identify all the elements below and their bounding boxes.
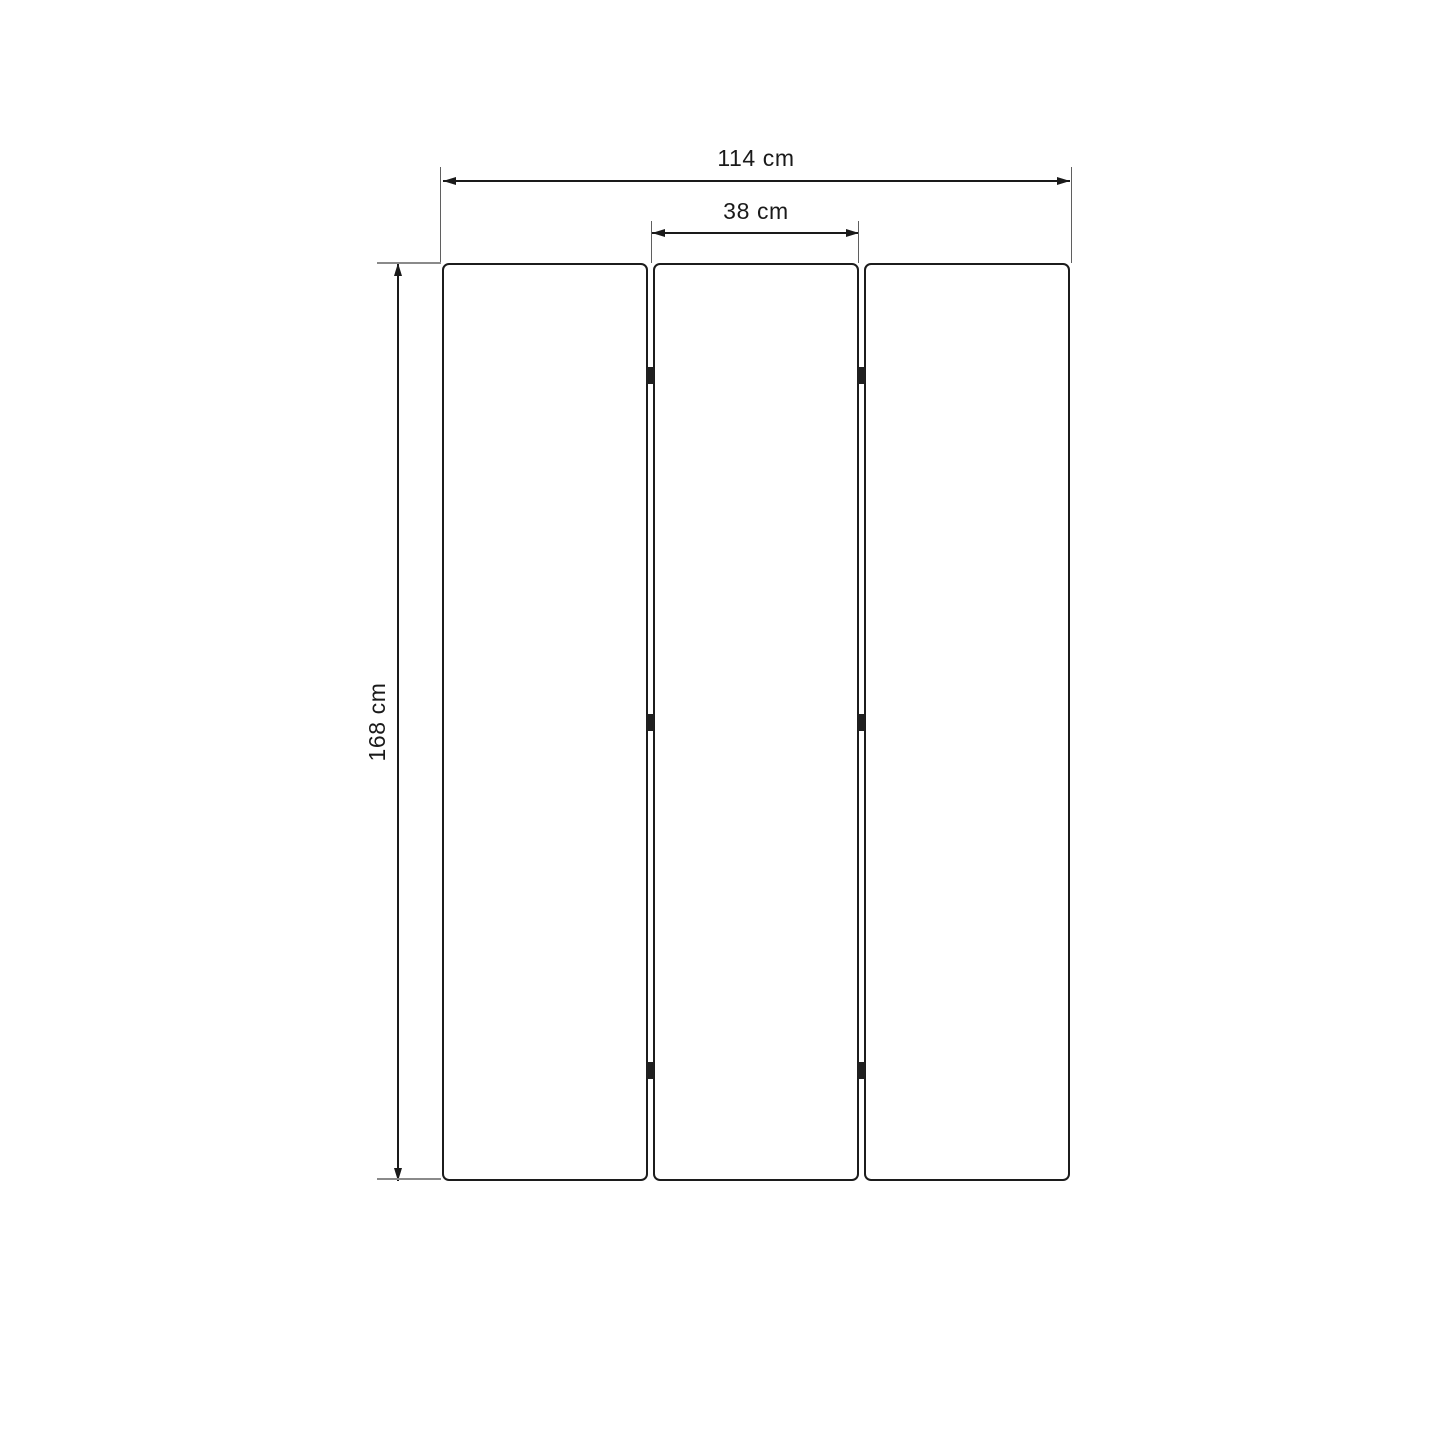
dimension-line-height <box>397 263 399 1181</box>
panel-left <box>442 263 648 1181</box>
arrowhead-right-icon <box>1057 177 1070 185</box>
arrowhead-left-icon <box>443 177 456 185</box>
extension-line-height-top <box>377 262 441 264</box>
hinge-right-top <box>857 367 865 384</box>
dimension-diagram-canvas: 114 cm 38 cm 168 cm <box>0 0 1445 1445</box>
extension-line-panel-width-right <box>858 221 859 263</box>
extension-line-total-width-left <box>440 167 441 263</box>
extension-line-total-width-right <box>1071 167 1072 263</box>
extension-line-panel-width-left <box>651 221 652 263</box>
dimension-label-total-width: 114 cm <box>606 143 906 173</box>
hinge-left-top <box>646 367 654 384</box>
hinge-left-bottom <box>646 1062 654 1079</box>
dimension-line-total-width <box>443 180 1070 182</box>
arrowhead-up-icon <box>394 263 402 276</box>
extension-line-height-bottom <box>377 1178 441 1180</box>
panel-middle <box>653 263 859 1181</box>
hinge-left-middle <box>646 714 654 731</box>
panel-right <box>864 263 1070 1181</box>
dimension-line-panel-width <box>652 232 859 234</box>
hinge-right-middle <box>857 714 865 731</box>
hinge-right-bottom <box>857 1062 865 1079</box>
arrowhead-left-icon <box>652 229 665 237</box>
dimension-label-height: 168 cm <box>362 662 392 782</box>
